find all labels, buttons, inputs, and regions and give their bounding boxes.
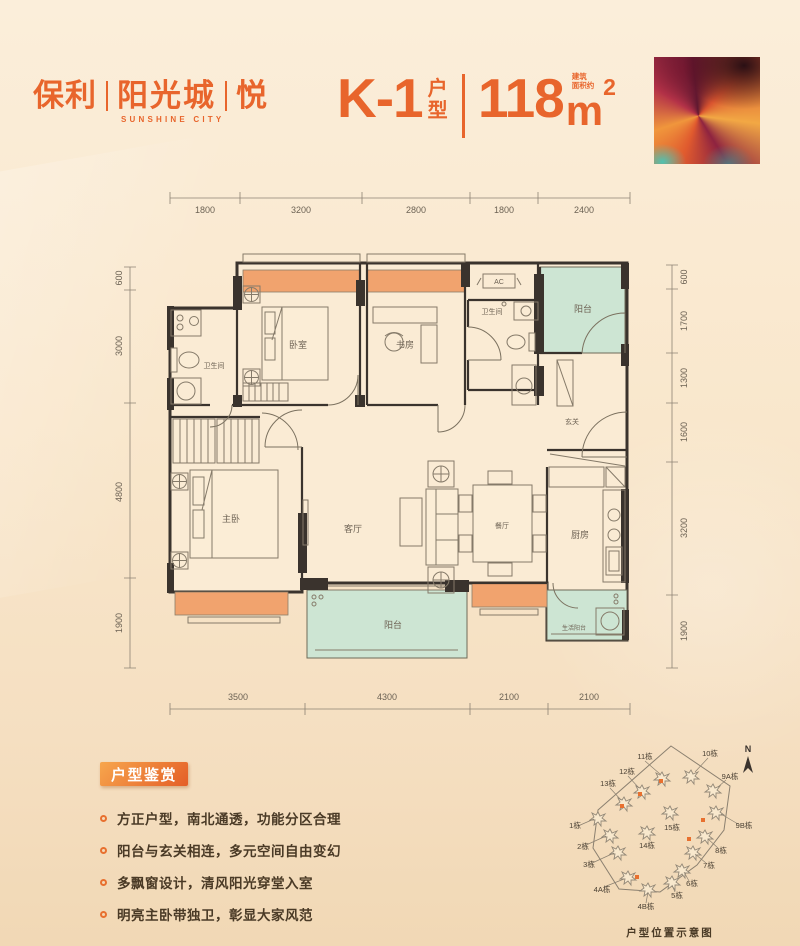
dim-top-1: 1800 <box>195 205 215 215</box>
bedroom-bay-window <box>243 270 360 292</box>
bullet-icon <box>100 815 107 822</box>
dim-left-2: 3000 <box>114 336 124 356</box>
area-value: 118 <box>478 72 564 126</box>
feature-text: 方正户型，南北通透，功能分区合理 <box>117 808 341 828</box>
dim-bottom-1: 3500 <box>228 692 248 702</box>
dim-top-2: 3200 <box>291 205 311 215</box>
area-unit: m <box>566 92 603 130</box>
dim-bottom-4: 2100 <box>579 692 599 702</box>
feature-item: 阳台与玄关相连，多元空间自由变幻 <box>100 840 470 860</box>
logo-english-subtitle: SUNSHINE CITY <box>121 115 267 124</box>
unit-type-label: 户型 <box>428 78 450 122</box>
room-label-service-balcony: 生活阳台 <box>562 624 586 632</box>
building-label: 2栋 <box>577 841 589 851</box>
room-label-master: 主卧 <box>222 513 240 524</box>
building-label: 1栋 <box>569 820 581 830</box>
feature-text: 阳台与玄关相连，多元空间自由变幻 <box>117 840 341 860</box>
feature-text: 明亮主卧带独卫，彰显大家风范 <box>117 904 313 924</box>
area-superscript: 2 <box>603 74 616 101</box>
feature-item: 方正户型，南北通透，功能分区合理 <box>100 808 470 828</box>
room-label-bedroom: 卧室 <box>289 339 307 350</box>
feature-item: 明亮主卧带独卫，彰显大家风范 <box>100 904 470 924</box>
dim-left-3: 4800 <box>114 482 124 502</box>
area-unit-wrap: 建筑 面积约 m <box>566 72 603 130</box>
unit-title: K-1 户型 118 建筑 面积约 m 2 <box>337 72 616 138</box>
feature-text: 多飘窗设计，清风阳光穿堂入室 <box>117 872 313 892</box>
building-labels: 1栋 2栋 3栋 4A栋 4B栋 5栋 6栋 7栋 8栋 9A栋 9B栋 10栋… <box>569 748 753 911</box>
logo-text-baoli: 保利 <box>33 80 97 111</box>
highlighted-unit-markers <box>620 779 705 879</box>
master-bay-window <box>175 592 288 615</box>
dim-right-4: 1600 <box>679 422 689 442</box>
dim-top-3: 2800 <box>406 205 426 215</box>
logo-text-suffix: 悦 <box>236 80 267 111</box>
room-label-living: 客厅 <box>344 523 362 534</box>
dim-bottom-2: 4300 <box>377 692 397 702</box>
features-list: 方正户型，南北通透，功能分区合理 阳台与玄关相连，多元空间自由变幻 多飘窗设计，… <box>100 808 470 924</box>
building-label: 10栋 <box>702 748 718 758</box>
flyer-page: 保利 阳光城 悦 SUNSHINE CITY K-1 户型 118 建筑 面积约… <box>0 0 800 946</box>
bullet-icon <box>100 911 107 918</box>
decorative-swirl-art <box>654 57 760 164</box>
north-compass-icon: N <box>743 744 753 773</box>
room-label-dining: 餐厅 <box>495 521 509 530</box>
room-label-kitchen: 厨房 <box>571 529 589 540</box>
dim-right-5: 3200 <box>679 518 689 538</box>
building-label: 14栋 <box>639 840 655 850</box>
room-label-bath2: 卫生间 <box>482 307 503 316</box>
building-clusters <box>590 770 724 897</box>
unit-code: K-1 <box>337 72 423 126</box>
features-heading: 户型鉴赏 <box>100 762 188 786</box>
title-divider <box>462 74 465 138</box>
study-bay-window <box>367 270 465 292</box>
building-label: 6栋 <box>686 878 698 888</box>
building-label: 13栋 <box>600 778 616 788</box>
building-label: 5栋 <box>671 890 683 900</box>
bullet-icon <box>100 847 107 854</box>
room-label-bath1: 卫生间 <box>204 361 225 370</box>
logo-text-brand: 阳光城 <box>117 80 216 111</box>
dim-bottom-3: 2100 <box>499 692 519 702</box>
dim-right-3: 1300 <box>679 368 689 388</box>
dim-left-4: 1900 <box>114 613 124 633</box>
building-label: 8栋 <box>715 845 727 855</box>
dim-right-2: 1700 <box>679 311 689 331</box>
room-label-ac: AC <box>494 279 504 286</box>
room-label-foyer: 玄关 <box>565 417 579 426</box>
building-label: 15栋 <box>664 822 680 832</box>
building-label: 7栋 <box>703 860 715 870</box>
building-label: 12栋 <box>619 766 635 776</box>
dim-left-1: 600 <box>114 270 124 285</box>
room-label-study: 书房 <box>396 339 414 350</box>
dining-bay-window <box>472 583 547 607</box>
area-note-line1: 建筑 <box>572 72 595 81</box>
building-label: 3栋 <box>583 859 595 869</box>
room-label-north-balcony: 阳台 <box>574 303 592 314</box>
site-boundary <box>593 746 730 892</box>
building-label: 11栋 <box>637 751 653 761</box>
brand-logo-row: 保利 阳光城 悦 <box>33 80 267 111</box>
building-label: 4B栋 <box>638 901 655 911</box>
features-section: 户型鉴赏 方正户型，南北通透，功能分区合理 阳台与玄关相连，多元空间自由变幻 多… <box>100 762 470 936</box>
dim-top-5: 2400 <box>574 205 594 215</box>
siteplan-caption: 户型位置示意图 <box>625 926 714 939</box>
logo-divider <box>225 81 227 111</box>
building-label: 9A栋 <box>722 771 739 781</box>
room-label-south-balcony: 阳台 <box>384 619 402 630</box>
dim-right-1: 600 <box>679 269 689 284</box>
feature-item: 多飘窗设计，清风阳光穿堂入室 <box>100 872 470 892</box>
siteplan-map: 1栋 2栋 3栋 4A栋 4B栋 5栋 6栋 7栋 8栋 9A栋 9B栋 10栋… <box>558 740 800 945</box>
logo-divider <box>106 81 108 111</box>
floorplan-drawing: 1800 3200 2800 1800 2400 600 3000 4800 1… <box>110 190 700 725</box>
building-label: 4A栋 <box>594 884 611 894</box>
dim-top-4: 1800 <box>494 205 514 215</box>
building-label: 9B栋 <box>736 820 753 830</box>
dim-right-6: 1900 <box>679 621 689 641</box>
brand-logo: 保利 阳光城 悦 SUNSHINE CITY <box>33 80 267 124</box>
north-label: N <box>745 744 752 754</box>
bullet-icon <box>100 879 107 886</box>
